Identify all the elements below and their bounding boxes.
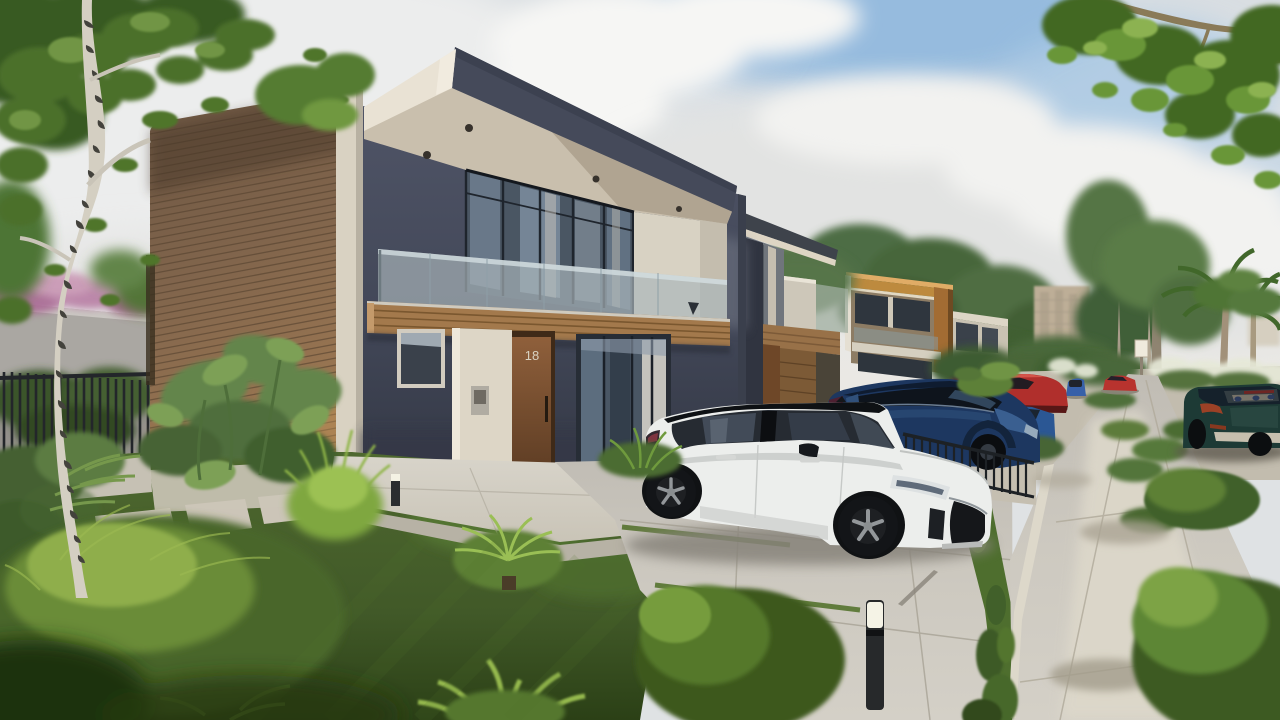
svg-text:18: 18: [525, 348, 539, 363]
